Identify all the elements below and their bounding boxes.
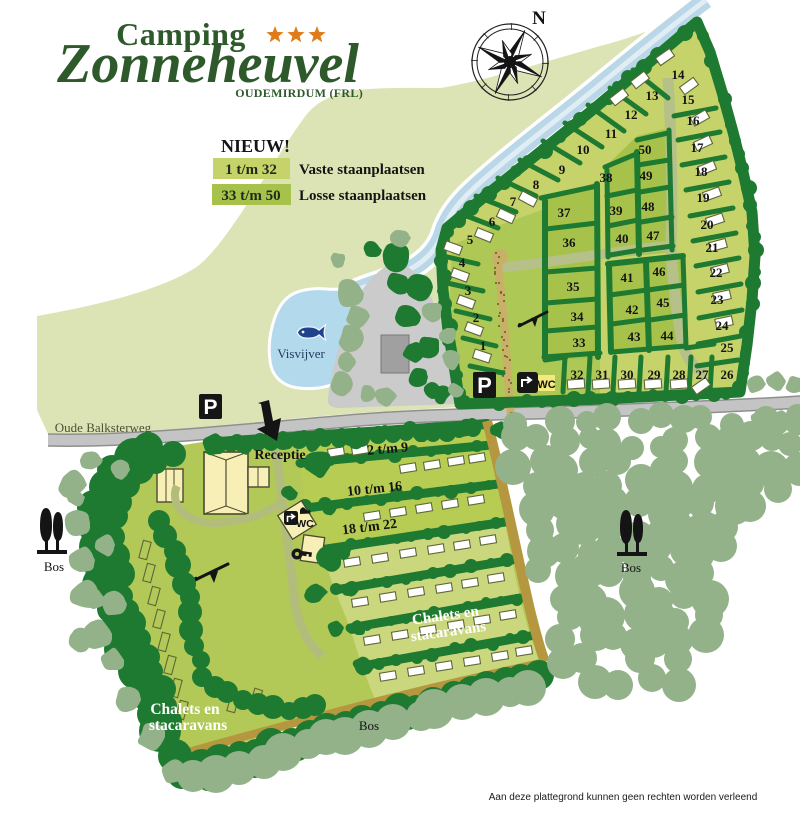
svg-text:10: 10 <box>577 142 590 157</box>
svg-text:Bos: Bos <box>359 718 379 733</box>
svg-text:37: 37 <box>558 205 572 220</box>
svg-text:48: 48 <box>642 199 656 214</box>
svg-text:3: 3 <box>465 283 472 298</box>
svg-text:33 t/m 50: 33 t/m 50 <box>221 188 280 204</box>
svg-text:NIEUW!: NIEUW! <box>221 136 290 156</box>
svg-text:39: 39 <box>610 203 624 218</box>
svg-text:11: 11 <box>605 126 617 141</box>
svg-text:50: 50 <box>639 142 652 157</box>
svg-text:Chalets en: Chalets en <box>150 701 220 718</box>
svg-text:2: 2 <box>473 310 480 325</box>
svg-text:1: 1 <box>480 338 487 353</box>
svg-text:5: 5 <box>467 232 474 247</box>
svg-text:Receptie: Receptie <box>254 448 305 463</box>
svg-text:N: N <box>532 8 546 29</box>
svg-text:stacaravans: stacaravans <box>149 717 227 734</box>
svg-text:15: 15 <box>682 92 696 107</box>
svg-text:18: 18 <box>695 164 709 179</box>
svg-text:6: 6 <box>489 214 496 229</box>
svg-text:27: 27 <box>696 367 710 382</box>
svg-text:34: 34 <box>571 309 585 324</box>
svg-text:25: 25 <box>721 340 735 355</box>
svg-text:43: 43 <box>628 329 642 344</box>
svg-text:12: 12 <box>625 107 638 122</box>
svg-text:31: 31 <box>596 367 609 382</box>
svg-text:Losse staanplaatsen: Losse staanplaatsen <box>299 188 427 204</box>
svg-text:28: 28 <box>673 367 687 382</box>
svg-text:7: 7 <box>510 194 517 209</box>
svg-text:30: 30 <box>621 367 634 382</box>
svg-text:16: 16 <box>687 113 701 128</box>
svg-text:40: 40 <box>616 231 629 246</box>
svg-text:1 t/m 32: 1 t/m 32 <box>225 162 277 178</box>
svg-text:21: 21 <box>706 240 719 255</box>
svg-text:46: 46 <box>653 264 667 279</box>
svg-text:9: 9 <box>559 162 566 177</box>
svg-text:Vaste staanplaatsen: Vaste staanplaatsen <box>299 162 425 178</box>
svg-text:26: 26 <box>721 367 735 382</box>
svg-text:P: P <box>203 396 217 419</box>
svg-text:23: 23 <box>711 292 725 307</box>
svg-text:OUDEMIRDUM (FRL): OUDEMIRDUM (FRL) <box>235 86 363 100</box>
svg-text:33: 33 <box>573 335 587 350</box>
svg-text:45: 45 <box>657 295 671 310</box>
svg-text:41: 41 <box>621 270 634 285</box>
svg-text:22: 22 <box>710 265 723 280</box>
svg-text:24: 24 <box>716 318 730 333</box>
svg-text:14: 14 <box>672 67 686 82</box>
svg-text:WC: WC <box>296 518 314 530</box>
svg-text:P: P <box>477 373 492 398</box>
svg-text:8: 8 <box>533 177 540 192</box>
svg-text:Aan deze plattegrond kunnen ge: Aan deze plattegrond kunnen geen rechten… <box>489 792 758 803</box>
svg-text:Visvijver: Visvijver <box>277 346 325 361</box>
svg-text:19: 19 <box>697 190 711 205</box>
svg-text:44: 44 <box>661 328 675 343</box>
svg-text:29: 29 <box>648 367 662 382</box>
svg-text:17: 17 <box>691 140 705 155</box>
svg-text:47: 47 <box>647 228 661 243</box>
svg-text:20: 20 <box>701 217 714 232</box>
svg-text:Oude Balksterweg: Oude Balksterweg <box>55 420 152 435</box>
svg-text:13: 13 <box>646 88 660 103</box>
svg-text:32: 32 <box>571 367 584 382</box>
svg-text:WC: WC <box>537 379 555 391</box>
svg-text:49: 49 <box>640 168 654 183</box>
svg-text:4: 4 <box>459 255 466 270</box>
svg-text:42: 42 <box>626 302 639 317</box>
svg-text:Bos: Bos <box>44 559 64 574</box>
svg-text:35: 35 <box>567 279 581 294</box>
svg-text:Bos: Bos <box>621 560 641 575</box>
svg-text:36: 36 <box>563 235 577 250</box>
svg-text:38: 38 <box>600 170 614 185</box>
